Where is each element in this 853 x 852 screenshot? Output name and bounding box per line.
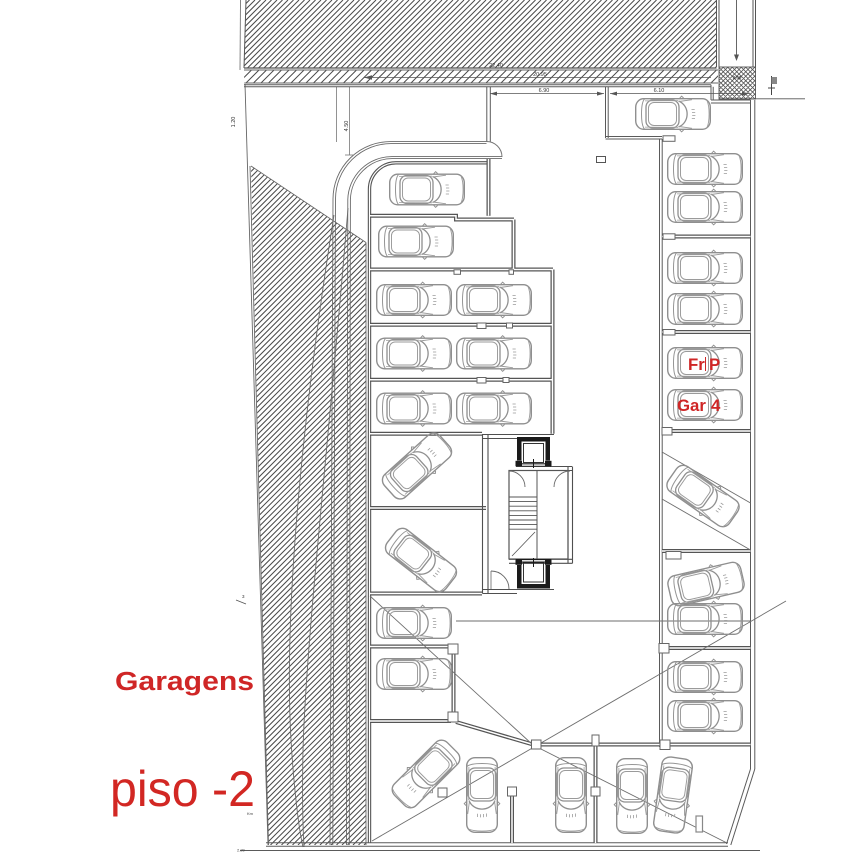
svg-text:6.90: 6.90 bbox=[539, 88, 550, 94]
svg-text:3.00: 3.00 bbox=[733, 75, 742, 80]
svg-text:1.20: 1.20 bbox=[231, 117, 237, 128]
svg-text:20.95: 20.95 bbox=[533, 72, 547, 78]
svg-text:2.20: 2.20 bbox=[237, 848, 246, 852]
svg-text:22.40: 22.40 bbox=[489, 63, 503, 69]
svg-text:4: 4 bbox=[711, 396, 721, 415]
svg-text:P: P bbox=[709, 355, 720, 374]
svg-text:Km: Km bbox=[247, 811, 254, 816]
svg-text:piso -2: piso -2 bbox=[110, 761, 255, 817]
svg-text:Gar: Gar bbox=[677, 396, 706, 415]
svg-text:Fr: Fr bbox=[688, 355, 705, 374]
svg-text:4.50: 4.50 bbox=[344, 121, 350, 132]
svg-text:Garagens: Garagens bbox=[115, 668, 254, 696]
svg-text:6.10: 6.10 bbox=[654, 88, 665, 94]
